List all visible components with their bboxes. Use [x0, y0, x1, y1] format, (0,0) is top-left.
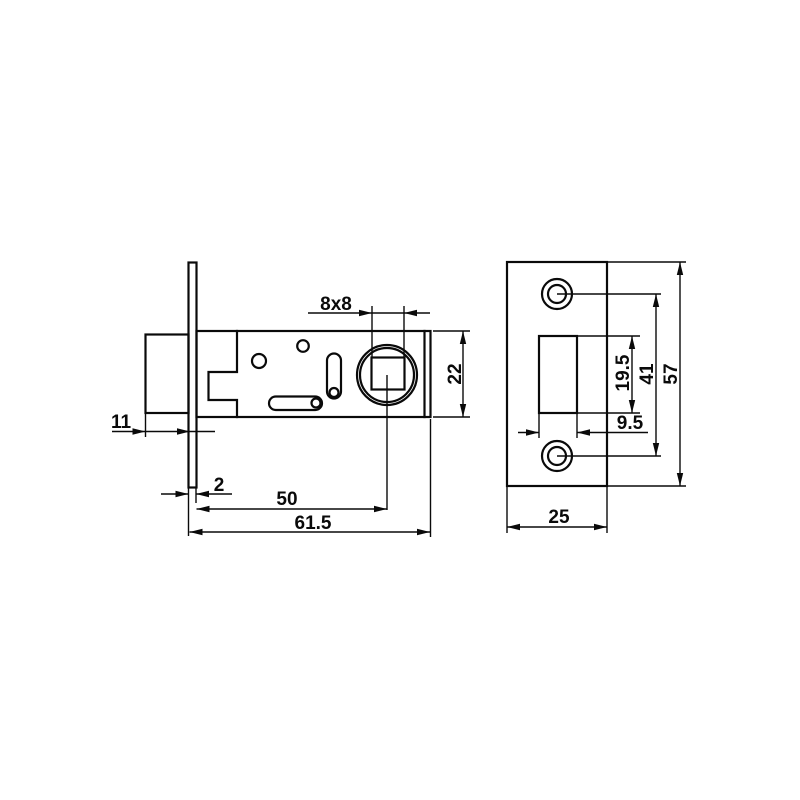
dim-bolt-protrusion-11: 11	[111, 412, 215, 437]
faceplate-plate	[507, 262, 607, 486]
spindle-square-hole	[372, 358, 405, 390]
technical-drawing: 8x8 22 11 2	[0, 0, 800, 800]
bolt-tail-notch	[209, 331, 238, 417]
dim-label-screw-spacing: 41	[637, 363, 658, 385]
dim-label-case-height: 22	[445, 363, 466, 384]
faceplate-edge	[189, 263, 197, 488]
guide-slot-vertical-pin	[330, 388, 339, 397]
dim-label-bolt-protrusion: 11	[111, 412, 132, 433]
latch-cutout	[539, 336, 577, 413]
dim-case-height-22: 22	[433, 331, 470, 417]
dim-plate-width-25: 25	[507, 486, 607, 533]
dim-label-cutout-height: 19.5	[613, 354, 634, 391]
latch-side-view: 8x8 22 11 2	[111, 263, 470, 538]
dim-cutout-height-19-5: 19.5	[577, 336, 640, 413]
dim-label-cutout-width: 9.5	[617, 413, 644, 434]
latch-bolt	[146, 335, 189, 414]
dim-label-plate-width: 25	[548, 507, 570, 528]
dim-label-spindle: 8x8	[320, 294, 352, 315]
dim-label-plate-height: 57	[661, 363, 682, 384]
dim-cutout-width-9-5: 9.5	[518, 413, 648, 438]
dim-backset-50: 50	[197, 489, 388, 512]
dim-spindle-8x8: 8x8	[308, 294, 430, 357]
drawing-page: 8x8 22 11 2	[0, 0, 800, 800]
dim-label-faceplate-thickness: 2	[214, 475, 225, 496]
case-pin-hole	[297, 340, 309, 352]
dim-case-length-61-5: 61.5	[190, 419, 431, 537]
guide-slot-horizontal-pin	[312, 399, 321, 408]
faceplate-front-view: 19.5 41 57 9.5	[507, 262, 686, 533]
dim-label-backset: 50	[276, 489, 297, 510]
case-hole	[252, 354, 266, 368]
dim-label-case-length: 61.5	[295, 513, 332, 534]
